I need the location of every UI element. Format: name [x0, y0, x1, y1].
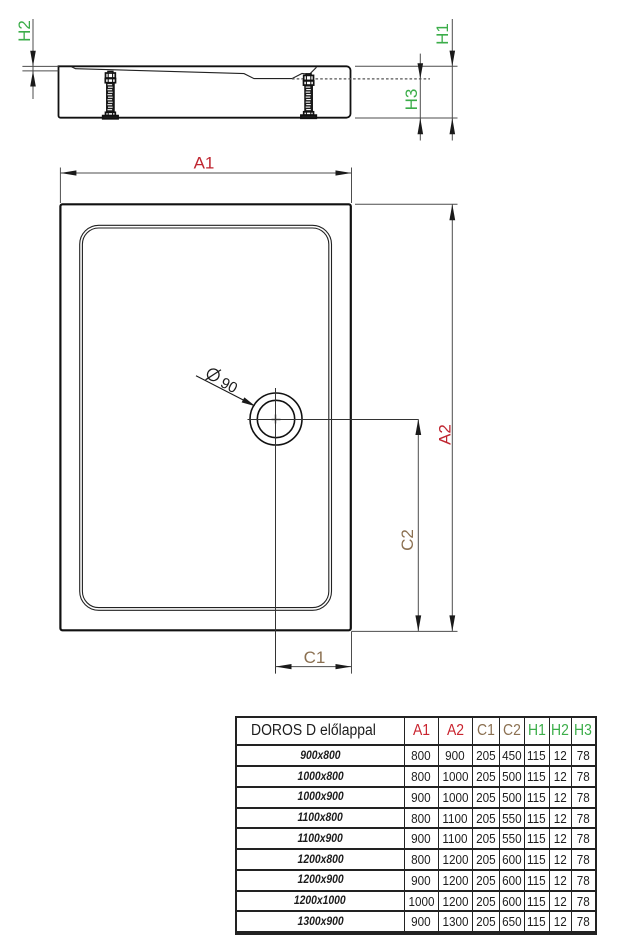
svg-text:H2: H2 — [15, 20, 34, 42]
svg-text:H3: H3 — [402, 89, 421, 111]
svg-text:H1: H1 — [433, 23, 452, 45]
svg-text:A2: A2 — [436, 424, 455, 445]
svg-text:C2: C2 — [398, 529, 417, 551]
svg-text:C1: C1 — [304, 648, 326, 667]
svg-text:90: 90 — [218, 374, 241, 397]
svg-text:A1: A1 — [194, 154, 215, 173]
